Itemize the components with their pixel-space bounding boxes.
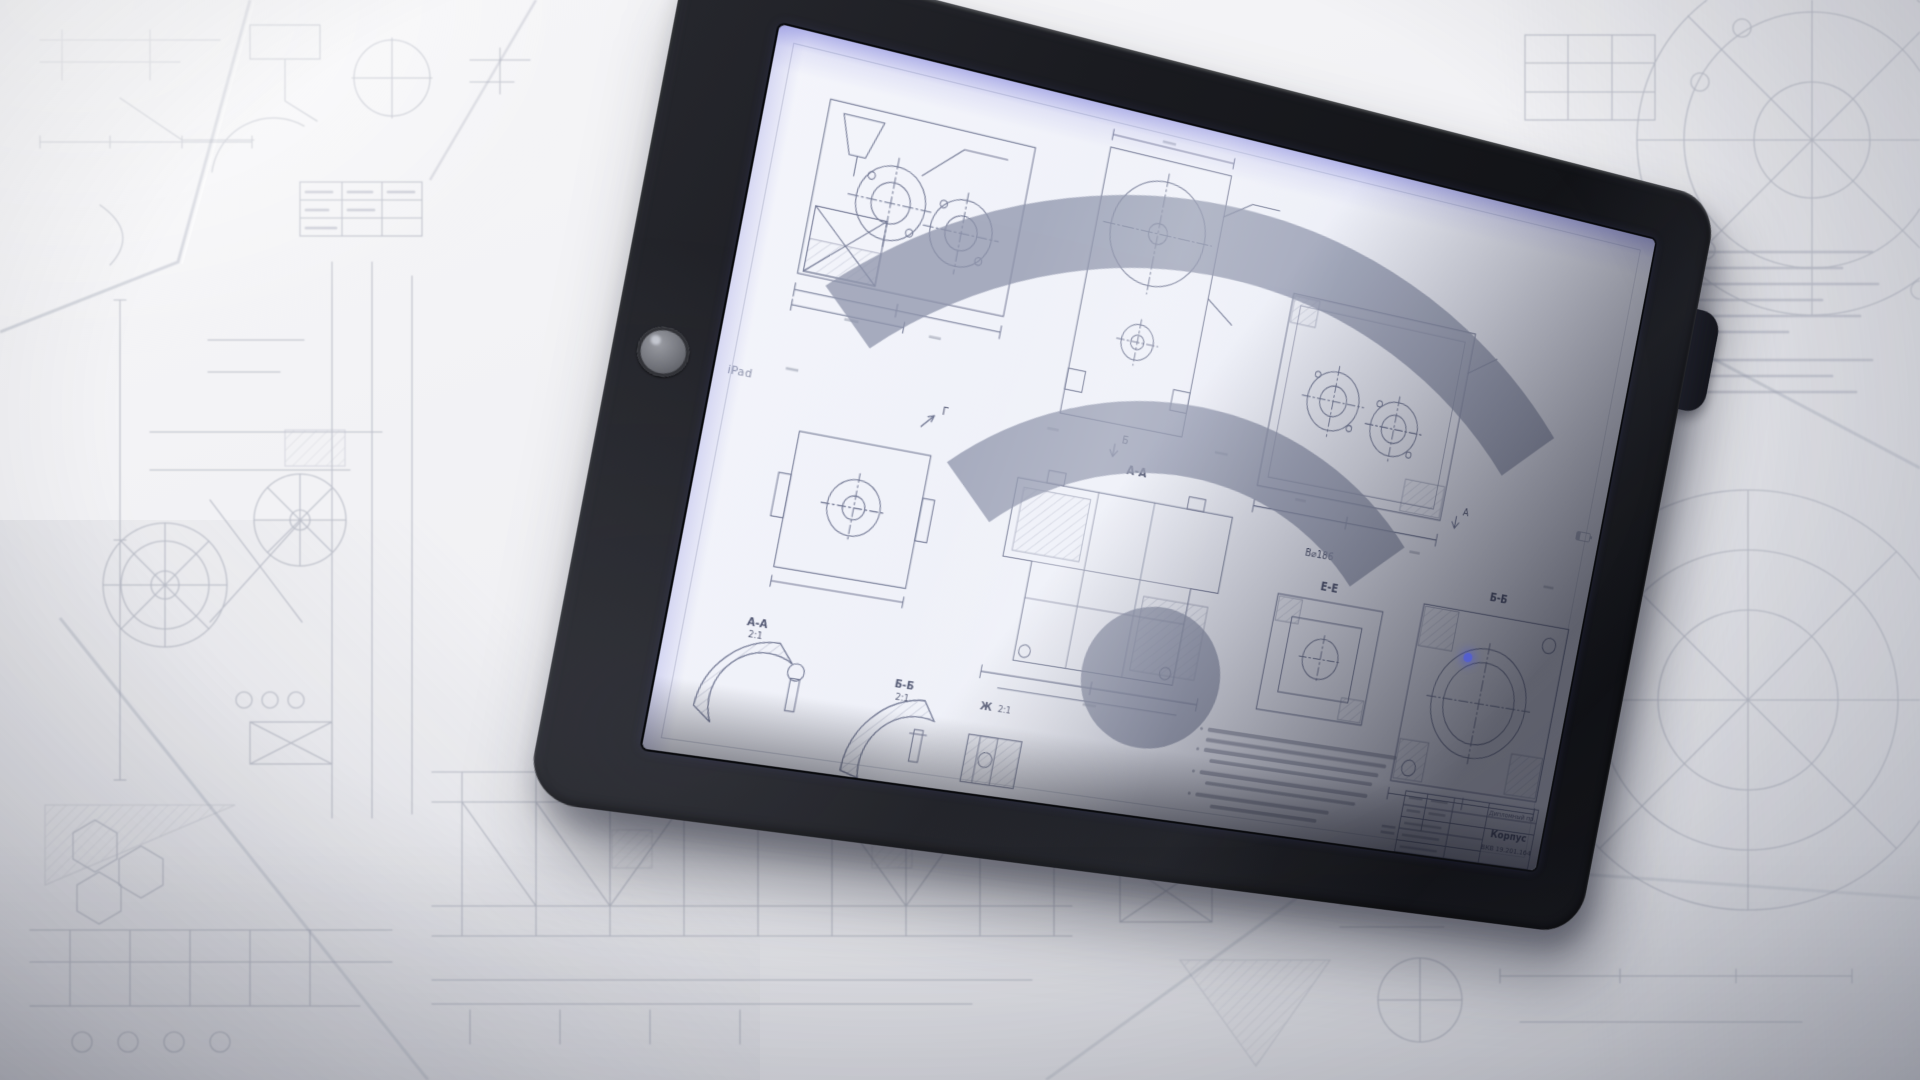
title-doc-number: ВКВ 19.201.164 [1480, 843, 1532, 858]
battery-icon [1575, 530, 1591, 542]
photo-scene: А-А Б-Б Е-Е В⌀186 А-А 2:1 Б-Б 2:1 Ж 2:1 … [0, 0, 1920, 1080]
device-label: iPad [726, 365, 753, 381]
